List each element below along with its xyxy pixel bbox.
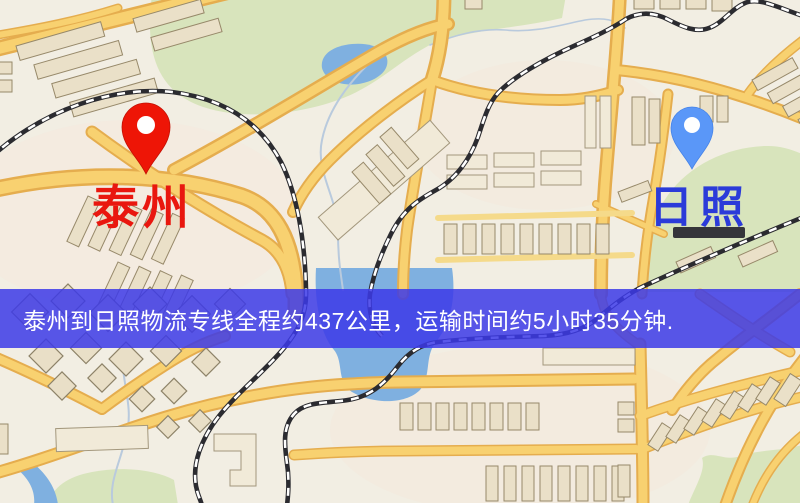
route-info-banner: 泰州到日照物流专线全程约437公里，运输时间约5小时35分钟. bbox=[0, 289, 800, 348]
taizhou-label: 泰州 bbox=[92, 183, 192, 235]
route-info-text: 泰州到日照物流专线全程约437公里，运输时间约5小时35分钟. bbox=[23, 302, 674, 336]
map-canvas: 泰州 日照 bbox=[0, 0, 800, 503]
pin-hole bbox=[137, 116, 155, 134]
rizhao-label: 日照 bbox=[649, 183, 751, 232]
map-screenshot: 泰州 日照 泰州到日照物流专线全程约437公里，运输时间约5小时35分钟. bbox=[0, 0, 800, 503]
pin-hole bbox=[684, 117, 700, 133]
